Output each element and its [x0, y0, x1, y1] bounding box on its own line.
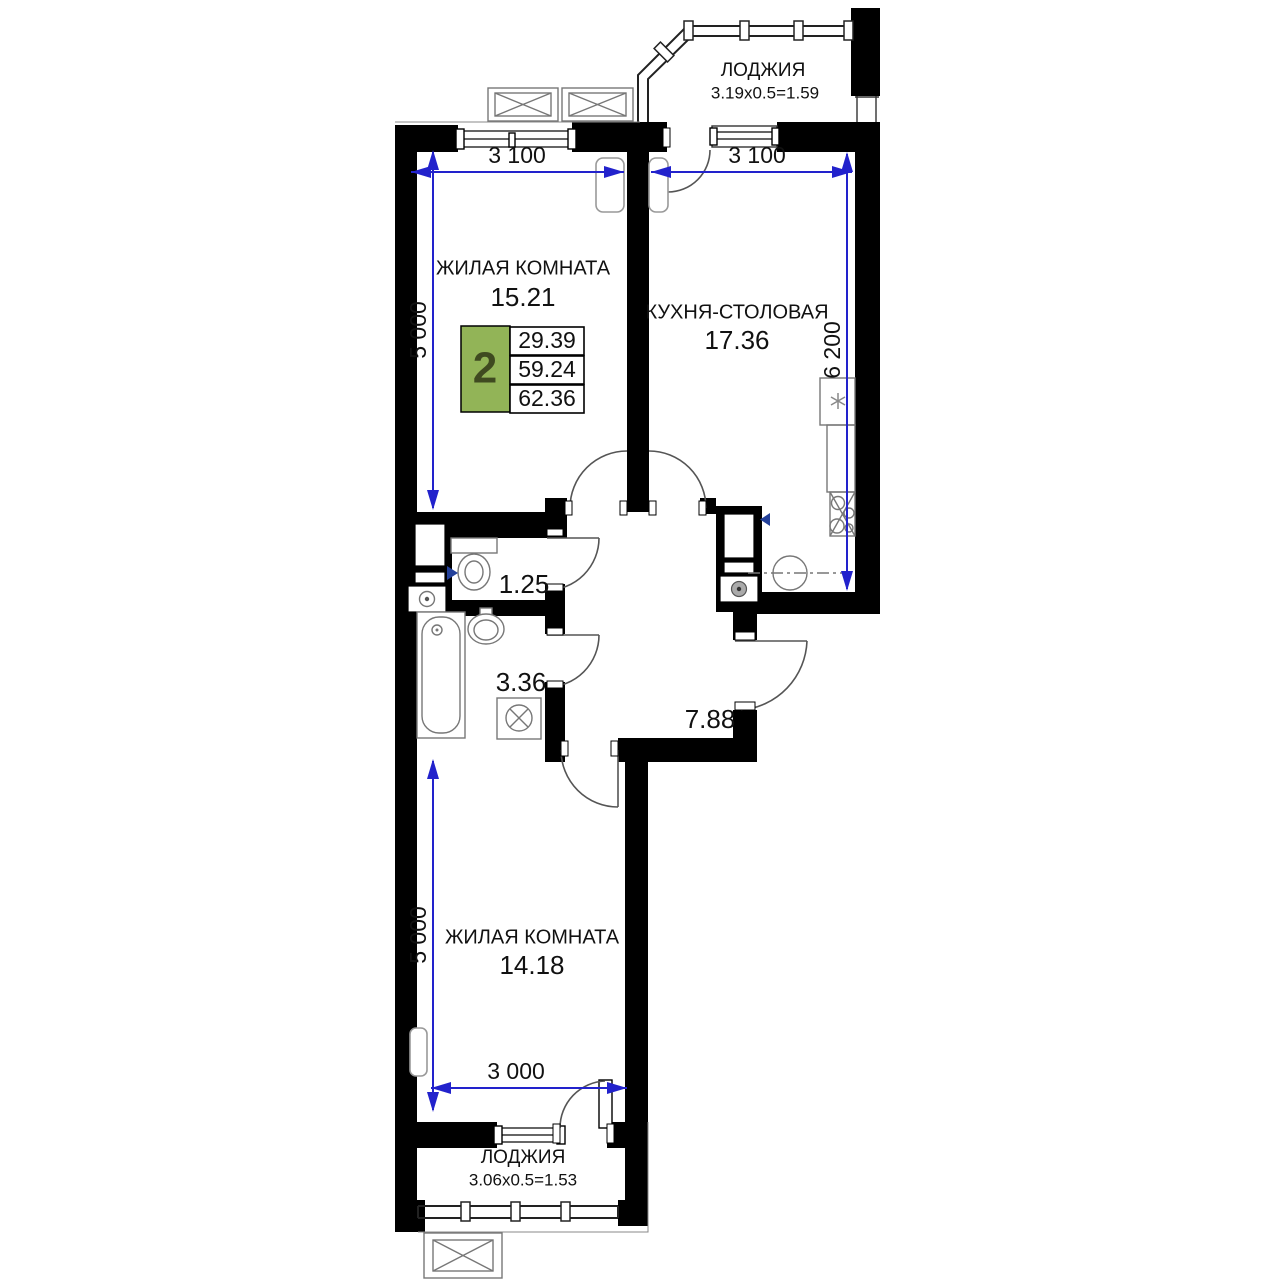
wall-loggia-b-corner-right — [618, 1200, 648, 1226]
window-loggia-pillar-gap — [855, 96, 879, 122]
kitchen-name: КУХНЯ-СТОЛОВАЯ — [645, 301, 828, 323]
dim-kitchen-width: 3 100 — [728, 142, 786, 168]
door-wc-arc — [547, 538, 599, 590]
wall-kitchen-bottom — [745, 592, 880, 614]
toilet-bowl-icon — [458, 554, 490, 590]
shaft-box — [724, 514, 754, 558]
stove-icon — [830, 492, 855, 536]
wall-room2-bottom-left — [395, 1122, 497, 1148]
door-living-top-arc — [570, 451, 627, 508]
living-bottom-name: ЖИЛАЯ КОМНАТА — [445, 926, 620, 948]
wall-top-left — [395, 125, 458, 152]
ac-unit-icon — [424, 1233, 502, 1278]
doors — [547, 128, 807, 1143]
loggia-top-name: ЛОДЖИЯ — [721, 60, 806, 81]
bath-area: 3.36 — [496, 667, 547, 697]
wall-hall-bottom — [618, 738, 757, 762]
living-top-name: ЖИЛАЯ КОМНАТА — [436, 257, 611, 279]
vent-star-icon — [831, 393, 845, 409]
wall-loggia-b-corner-left — [395, 1200, 425, 1232]
dim-living-bottom-width: 3 000 — [487, 1058, 545, 1084]
water-marker-icon — [447, 566, 458, 580]
wall-partition-living-kitchen — [627, 152, 649, 512]
door-bath-arc — [547, 635, 599, 687]
wall-room2-right — [625, 762, 648, 1225]
wall-right — [855, 122, 880, 614]
wall-top-mid — [572, 122, 667, 152]
dim-living-top-height: 5 000 — [405, 301, 431, 359]
loggia-bottom-name: ЛОДЖИЯ — [481, 1147, 566, 1168]
kitchen-fixtures — [748, 378, 855, 590]
toilet-tank-icon — [451, 538, 497, 553]
door-room2-arc — [561, 750, 618, 807]
living-top-area: 15.21 — [490, 282, 555, 312]
entry-door-arc — [741, 641, 807, 710]
wc-area: 1.25 — [499, 569, 550, 599]
ac-unit-icon — [562, 88, 633, 121]
living-bottom-area: 14.18 — [499, 950, 564, 980]
badge-area-living: 29.39 — [518, 327, 576, 353]
badge-area-main: 59.24 — [518, 356, 576, 382]
dim-living-bottom-height: 5 000 — [405, 906, 431, 964]
windows — [456, 96, 879, 1148]
floor-plan-page: 5 000 3 100 3 100 6 200 5 000 3 000 ЛОДЖ… — [0, 0, 1280, 1280]
riser-dot-icon — [425, 597, 429, 601]
unit-badge: 2 29.39 59.24 62.36 — [461, 326, 584, 413]
badge-rooms-count: 2 — [473, 344, 497, 393]
shaft-box — [415, 572, 445, 583]
loggia-top-area: 3.19x0.5=1.59 — [711, 83, 819, 102]
wall-loggia-pillar — [851, 8, 880, 96]
door-kitchen-arc — [649, 451, 706, 508]
riser-dot-icon — [737, 587, 741, 591]
shaft-box — [724, 562, 754, 573]
loggia-bottom-area: 3.06x0.5=1.53 — [469, 1170, 577, 1189]
dim-living-top-width: 3 100 — [488, 142, 546, 168]
ac-unit-icon — [488, 88, 558, 121]
hall-area: 7.88 — [685, 704, 736, 734]
kitchen-counter — [827, 425, 855, 492]
dim-kitchen-height: 6 200 — [819, 321, 845, 379]
shaft-box — [415, 524, 445, 566]
kitchen-area: 17.36 — [704, 325, 769, 355]
radiator-icon — [649, 158, 668, 212]
floor-plan-drawing: 5 000 3 100 3 100 6 200 5 000 3 000 ЛОДЖ… — [0, 0, 1280, 1280]
bathtub-icon — [417, 612, 465, 738]
radiator-icon — [410, 1028, 427, 1076]
wc-fixtures — [447, 538, 497, 590]
walls — [395, 8, 880, 1232]
radiator-icon — [596, 158, 624, 212]
badge-area-total: 62.36 — [518, 385, 576, 411]
